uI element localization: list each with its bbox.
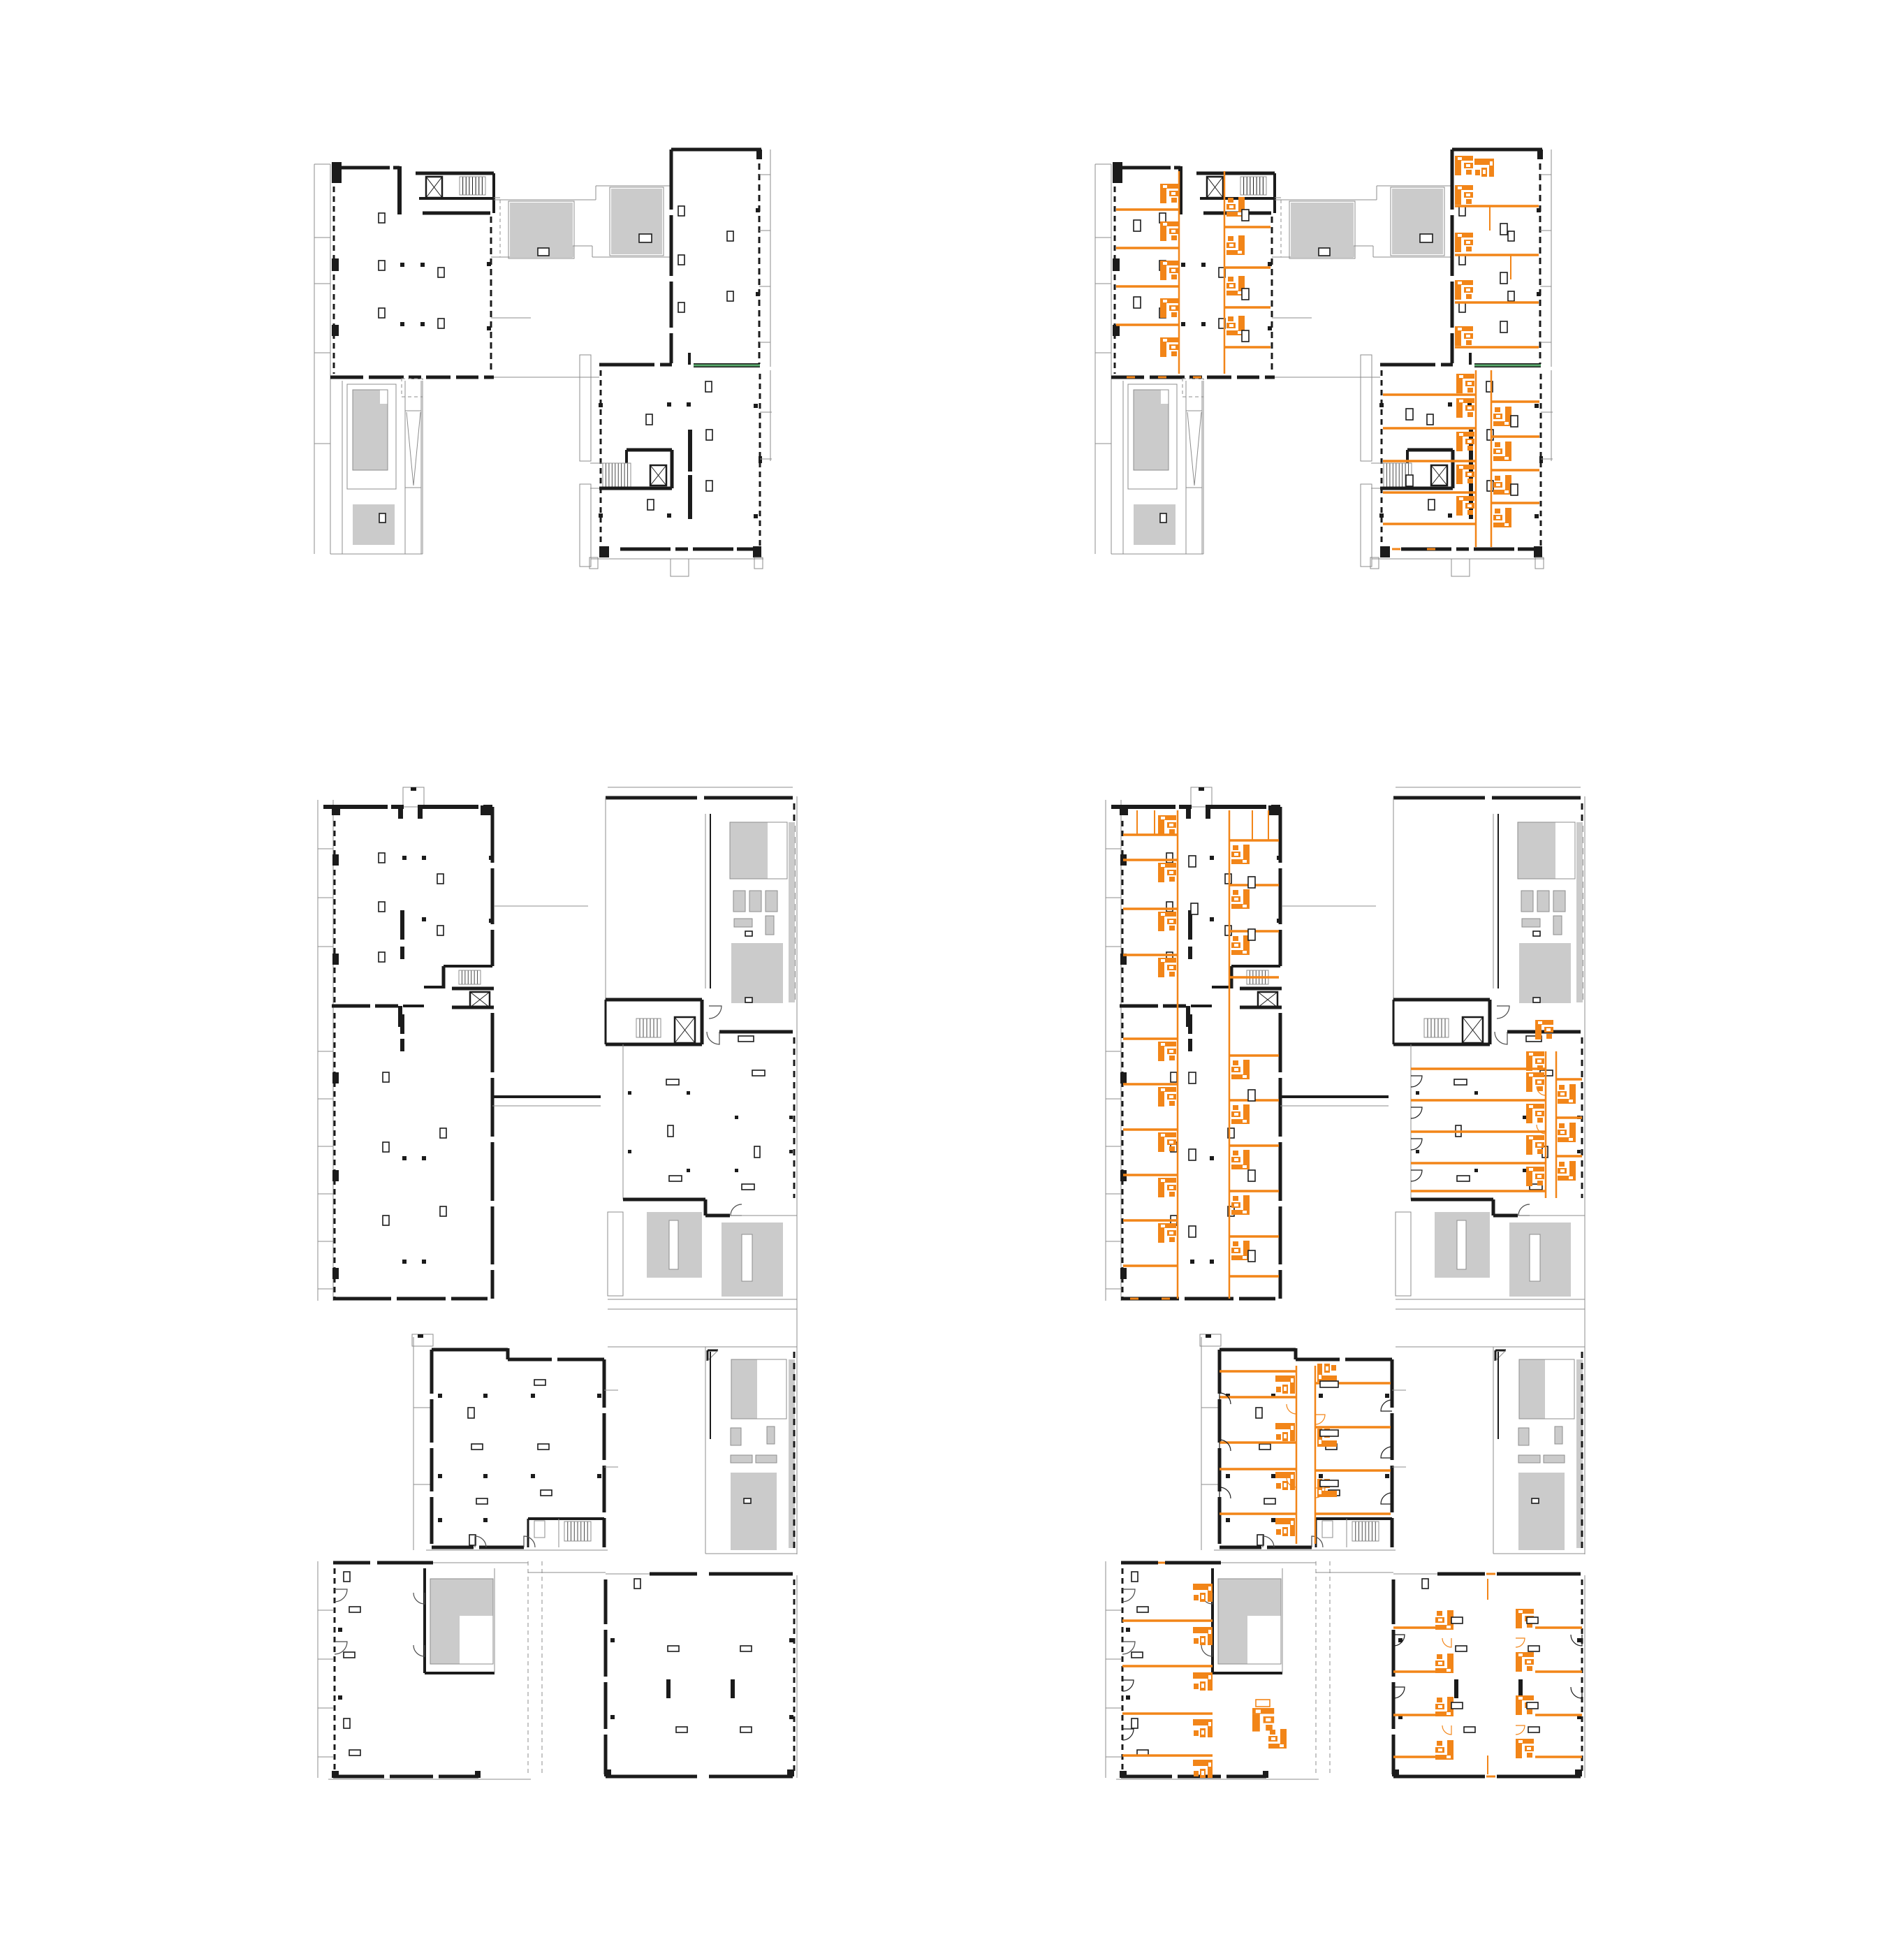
unit-fixture-part [1489, 159, 1494, 177]
area-rect [332, 258, 339, 271]
column-rect [752, 1070, 765, 1076]
unit-fixture-part [1435, 1712, 1453, 1716]
area-rect [787, 1769, 794, 1776]
door-swing-icon [1287, 1404, 1296, 1414]
column-dot [531, 1474, 535, 1478]
unit-fixture-part [1275, 1423, 1290, 1429]
unit-fixture-part [1233, 1151, 1238, 1155]
gray-area [734, 919, 752, 927]
door-swing-icon [731, 1204, 742, 1216]
unit-fixture-cutout [1284, 1529, 1287, 1533]
unit-fixture-part [1193, 1672, 1208, 1679]
column-rect [1320, 1480, 1338, 1487]
unit-fixture-part [1526, 1135, 1544, 1140]
unit-fixture-part [1456, 501, 1463, 516]
column-dot [483, 1474, 488, 1478]
unit-fixture-cutout [1169, 1050, 1173, 1053]
unit-fixture-icon [1317, 1364, 1337, 1382]
column-rect [639, 234, 652, 242]
unit-fixture-cutout [1243, 905, 1247, 907]
unit-fixture-cutout [1537, 1060, 1541, 1063]
unit-fixture-cutout [1467, 440, 1472, 443]
unit-fixture-cutout [1458, 282, 1462, 284]
unit-fixture-cutout [1243, 860, 1247, 863]
unit-fixture-cutout [1238, 331, 1242, 334]
unit-fixture-cutout [1459, 497, 1463, 500]
column-dot [1319, 1394, 1323, 1398]
unit-fixture-cutout [1447, 1712, 1451, 1715]
unit-fixture-part [1280, 1729, 1287, 1744]
column-rect [383, 1216, 389, 1225]
unit-fixture-part [1158, 868, 1164, 882]
door-swing-icon [1411, 1076, 1422, 1087]
area-rect [400, 1039, 404, 1051]
unit-fixture-part [1290, 1518, 1295, 1536]
unit-fixture-cutout [1284, 1483, 1287, 1487]
column-dot [599, 403, 603, 407]
column-rect [1451, 1617, 1463, 1623]
area-rect [1454, 1679, 1458, 1698]
column-dot [1448, 402, 1452, 407]
column-dot [789, 1638, 793, 1642]
unit-fixture-part [1322, 1440, 1337, 1447]
area-rect [1530, 1234, 1540, 1281]
column-dot [628, 1150, 631, 1153]
unit-fixture-part [1455, 185, 1473, 190]
unit-fixture-part [1505, 441, 1511, 456]
unit-fixture-part [1516, 1739, 1534, 1744]
unit-fixture-cutout [1496, 450, 1500, 453]
unit-fixture-part [1208, 1672, 1213, 1691]
column-rect [668, 1646, 679, 1651]
area-rect [1263, 1771, 1268, 1778]
column-rect [1454, 1079, 1467, 1085]
floor-plan-upper-base [311, 143, 800, 583]
area-rect [332, 1268, 339, 1279]
unit-fixture-part [1243, 845, 1250, 859]
unit-fixture-cutout [1447, 1756, 1451, 1758]
unit-fixture-part [1466, 170, 1472, 175]
area-rect [1186, 807, 1191, 819]
area-rect [332, 325, 339, 336]
wall-line [413, 412, 420, 486]
column-dot [422, 1156, 426, 1160]
unit-fixture-cutout [1490, 161, 1493, 166]
unit-fixture-part [1456, 379, 1463, 393]
column-rect [1189, 856, 1196, 867]
unit-fixture-part [1158, 1137, 1164, 1152]
column-dot [597, 1394, 601, 1398]
unit-fixture-cutout [1466, 194, 1470, 196]
area-rect [1120, 1268, 1127, 1279]
column-rect [379, 902, 385, 912]
unit-fixture-part [1231, 950, 1250, 955]
unit-fixture-icon [1435, 1697, 1453, 1716]
unit-fixture-part [1169, 1056, 1175, 1060]
door-swing-icon [1411, 1170, 1422, 1181]
column-rect [541, 1490, 552, 1496]
unit-fixture-part [1516, 1657, 1522, 1672]
column-dot [1226, 1474, 1230, 1478]
column-dot [1210, 917, 1214, 921]
unit-fixture-cutout [1161, 1088, 1165, 1091]
unit-fixture-part [1474, 159, 1489, 165]
column-dot [400, 322, 404, 326]
unit-fixture-part [1475, 170, 1480, 175]
unit-fixture-part [1158, 963, 1164, 977]
area-rect [332, 954, 339, 965]
column-dot [402, 1260, 407, 1264]
unit-fixture-part [1558, 1099, 1576, 1104]
door-swing-icon [1122, 1589, 1135, 1602]
column-dot [756, 208, 760, 212]
gray-area [353, 504, 395, 545]
unit-fixture-cutout [1560, 1131, 1565, 1134]
unit-fixture-icon [1158, 1132, 1176, 1152]
column-rect [1464, 1727, 1475, 1732]
unit-fixture-icon [1455, 233, 1473, 252]
unit-fixture-part [1169, 1146, 1175, 1151]
unit-fixture-cutout [1171, 192, 1176, 195]
unit-fixture-icon [1193, 1584, 1213, 1602]
unit-fixture-icon [1455, 185, 1473, 205]
unit-fixture-icon [1526, 1167, 1544, 1186]
column-dot [1181, 263, 1185, 267]
unit-fixture-part [1268, 1744, 1287, 1749]
column-rect [1319, 248, 1330, 256]
unit-fixture-cutout [1243, 1075, 1247, 1078]
column-rect [745, 998, 752, 1002]
gray-area [731, 1455, 752, 1463]
layer-top_base [314, 149, 772, 576]
area-rect [1188, 1014, 1192, 1034]
column-dot [597, 1474, 601, 1478]
unit-fixture-cutout [1284, 1387, 1287, 1391]
unit-fixture-cutout [1169, 1141, 1173, 1144]
unit-fixture-part [1546, 1034, 1552, 1039]
unit-fixture-part [1455, 238, 1461, 252]
layer-bottom_base [318, 787, 797, 1779]
area-rect [332, 1072, 339, 1083]
unit-fixture-part [1160, 342, 1166, 357]
column-rect [383, 1072, 389, 1082]
unit-fixture-part [1456, 374, 1474, 379]
area-rect [759, 456, 762, 463]
unit-fixture-part [1275, 1518, 1290, 1524]
unit-fixture-icon [1456, 465, 1474, 484]
unit-fixture-part [1226, 250, 1245, 255]
unit-fixture-part [1437, 1654, 1442, 1659]
unit-fixture-part [1194, 1730, 1199, 1736]
unit-fixture-cutout [1280, 1744, 1284, 1747]
area-rect [666, 1679, 671, 1698]
column-dot [402, 856, 407, 860]
column-rect [383, 1142, 389, 1152]
unit-fixture-cutout [1529, 1105, 1533, 1108]
door-swing-icon [1315, 1415, 1325, 1424]
unit-fixture-part [1160, 298, 1178, 303]
unit-fixture-icon [1435, 1740, 1453, 1760]
unit-fixture-part [1231, 904, 1250, 909]
column-dot [489, 856, 493, 860]
area-rect [1113, 258, 1120, 271]
unit-fixture-part [1171, 312, 1177, 317]
door-swing-icon [1411, 1139, 1422, 1150]
unit-fixture-cutout [1284, 1434, 1287, 1438]
unit-fixture-cutout [1496, 516, 1500, 519]
unit-fixture-part [1276, 1434, 1281, 1440]
unit-fixture-part [1158, 1228, 1164, 1243]
unit-fixture-cutout [1459, 400, 1463, 402]
unit-fixture-part [1527, 1753, 1532, 1758]
column-rect [344, 1572, 350, 1582]
column-rect [1500, 321, 1507, 333]
column-rect [706, 430, 712, 440]
unit-fixture-cutout [1483, 170, 1486, 174]
unit-fixture-cutout [1504, 422, 1509, 425]
plan-sheet [0, 0, 1904, 1956]
unit-fixture-cutout [1208, 1675, 1211, 1679]
unit-fixture-cutout [1504, 523, 1509, 526]
door-swing-icon [707, 1032, 719, 1044]
unit-fixture-icon [1526, 1072, 1544, 1092]
unit-fixture-icon [1268, 1729, 1287, 1749]
unit-fixture-part [1231, 1165, 1250, 1169]
unit-fixture-part [1537, 1065, 1543, 1070]
unit-fixture-icon [1158, 1223, 1176, 1243]
area-rect [460, 1616, 493, 1664]
column-dot [1126, 1695, 1130, 1700]
column-rect [727, 291, 733, 301]
unit-fixture-icon [1231, 845, 1250, 864]
unit-fixture-part [1243, 1195, 1250, 1210]
area-rect [1451, 559, 1470, 576]
column-rect [344, 1652, 355, 1658]
unit-fixture-cutout [1234, 944, 1238, 947]
unit-fixture-cutout [1459, 433, 1463, 436]
column-dot [438, 1394, 442, 1398]
column-rect [1166, 853, 1173, 863]
unit-fixture-cutout [1163, 300, 1167, 302]
unit-fixture-cutout [1238, 291, 1242, 294]
unit-fixture-part [1208, 1627, 1213, 1645]
column-dot [1210, 856, 1214, 860]
unit-fixture-cutout [1466, 289, 1470, 291]
unit-fixture-part [1447, 1654, 1453, 1668]
unit-fixture-cutout [1560, 1169, 1565, 1172]
area-rect [332, 1170, 339, 1181]
unit-fixture-part [1233, 1196, 1238, 1201]
unit-fixture-part [1158, 958, 1176, 963]
unit-fixture-icon [1526, 1135, 1544, 1155]
unit-fixture-icon [1231, 889, 1250, 909]
unit-fixture-cutout [1467, 504, 1472, 507]
unit-fixture-part [1559, 1085, 1565, 1090]
column-dot [687, 402, 691, 407]
unit-fixture-cutout [1234, 1113, 1238, 1116]
door-swing-icon [1518, 1204, 1530, 1216]
gray-area [1522, 919, 1540, 927]
unit-fixture-part [1495, 476, 1500, 481]
unit-fixture-part [1228, 316, 1233, 321]
column-rect [1248, 1250, 1255, 1262]
unit-fixture-cutout [1291, 1521, 1294, 1525]
column-dot [422, 856, 426, 860]
unit-fixture-cutout [1243, 1256, 1247, 1259]
unit-fixture-icon [1456, 496, 1474, 516]
column-rect [379, 952, 385, 962]
column-dot [531, 1394, 535, 1398]
area-rect [753, 546, 761, 557]
column-dot [338, 1695, 342, 1700]
column-rect [468, 1408, 474, 1418]
column-rect [1420, 234, 1433, 242]
column-rect [1189, 1226, 1196, 1237]
column-dot [754, 514, 758, 518]
unit-fixture-cutout [1238, 251, 1242, 254]
area-rect [1575, 1769, 1582, 1776]
unit-fixture-cutout [1238, 212, 1242, 215]
column-rect [1242, 210, 1249, 221]
floor-plan-upper-units-highlighted [1092, 143, 1581, 583]
unit-fixture-cutout [1527, 1661, 1531, 1663]
column-rect [379, 213, 385, 223]
unit-fixture-cutout [1266, 1718, 1270, 1721]
column-dot [400, 263, 404, 267]
column-dot [1271, 1518, 1275, 1522]
unit-fixture-part [1194, 1595, 1199, 1600]
unit-fixture-cutout [1243, 1120, 1247, 1123]
area-rect [688, 430, 692, 472]
unit-fixture-part [1158, 820, 1164, 835]
area-rect [1206, 807, 1210, 819]
unit-fixture-cutout [1438, 1749, 1442, 1751]
column-rect [437, 926, 444, 935]
gray-area [1518, 1455, 1540, 1463]
unit-fixture-cutout [1256, 1709, 1261, 1713]
unit-fixture-part [1193, 1719, 1208, 1725]
unit-fixture-icon [1456, 374, 1474, 393]
unit-fixture-part [1169, 1101, 1175, 1106]
column-dot [483, 1518, 488, 1522]
unit-fixture-cutout [1208, 1762, 1211, 1767]
unit-fixture-icon [1275, 1518, 1295, 1536]
column-dot [1416, 1150, 1419, 1153]
unit-fixture-part [1456, 403, 1463, 418]
column-rect [1528, 1646, 1539, 1651]
column-rect [1459, 255, 1465, 265]
unit-fixture-part [1231, 1119, 1250, 1124]
unit-fixture-part [1526, 1109, 1532, 1123]
unit-fixture-part [1569, 1161, 1576, 1176]
unit-fixture-part [1169, 1192, 1175, 1197]
gray-area [1537, 891, 1549, 912]
unit-fixture-part [1169, 877, 1175, 882]
gray-area [1519, 1359, 1545, 1419]
unit-fixture-part [1243, 1150, 1250, 1165]
unit-fixture-part [1455, 331, 1461, 346]
unit-fixture-cutout [1161, 1225, 1165, 1227]
unit-fixture-cutout [1161, 817, 1165, 819]
unit-fixture-part [1516, 1695, 1534, 1700]
column-dot [1201, 322, 1206, 326]
column-rect [471, 1444, 483, 1450]
door-swing-icon [413, 1645, 425, 1656]
area-rect [604, 1769, 611, 1776]
unit-fixture-cutout [1438, 1619, 1442, 1621]
area-rect [481, 805, 492, 815]
column-rect [1459, 206, 1465, 216]
unit-fixture-cutout [1467, 407, 1472, 409]
unit-fixture-cutout [1169, 920, 1173, 923]
unit-fixture-part [1437, 1698, 1442, 1702]
unit-fixture-part [1435, 1755, 1453, 1760]
column-rect [744, 1498, 751, 1503]
unit-fixture-icon [1160, 298, 1178, 318]
unit-fixture-cutout [1161, 1043, 1165, 1046]
unit-fixture-icon [1193, 1627, 1213, 1645]
area-rect [332, 162, 342, 183]
unit-fixture-part [1158, 1223, 1176, 1228]
unit-fixture-part [1276, 1483, 1281, 1489]
unit-fixture-cutout [1163, 262, 1167, 265]
wall-line [1187, 412, 1194, 486]
column-rect [1532, 1498, 1539, 1503]
unit-fixture-cutout [1537, 1144, 1541, 1146]
unit-fixture-part [1437, 1741, 1442, 1746]
unit-fixture-icon [1456, 432, 1474, 451]
unit-fixture-part [1456, 469, 1463, 484]
unit-fixture-part [1455, 190, 1461, 205]
door-swing-icon [1516, 1725, 1525, 1735]
unit-fixture-part [1171, 275, 1177, 279]
unit-fixture-part [1456, 496, 1474, 501]
column-rect [646, 414, 652, 425]
column-rect [1457, 1176, 1470, 1181]
unit-fixture-icon [1456, 398, 1474, 418]
door-swing-icon [1442, 1638, 1451, 1647]
unit-fixture-part [1233, 1060, 1238, 1065]
column-dot [1535, 404, 1539, 408]
layer-top_base [1095, 149, 1553, 576]
area-rect [1120, 1072, 1127, 1083]
area-rect [1518, 1679, 1523, 1698]
unit-fixture-icon [1158, 1087, 1176, 1107]
column-rect [754, 1146, 760, 1158]
door-swing-icon [1201, 1645, 1213, 1656]
unit-fixture-cutout [1208, 1586, 1211, 1591]
gray-area [1553, 891, 1565, 912]
unit-fixture-part [1466, 247, 1472, 251]
column-dot [789, 1715, 793, 1719]
area-rect [332, 854, 339, 866]
unit-fixture-part [1537, 1118, 1543, 1123]
unit-fixture-part [1169, 1237, 1175, 1242]
unit-fixture-part [1238, 316, 1245, 330]
unit-fixture-part [1208, 1760, 1213, 1778]
unit-fixture-cutout [1243, 1211, 1247, 1213]
unit-fixture-part [1526, 1072, 1544, 1077]
column-rect [647, 499, 654, 510]
unit-fixture-cutout [1169, 1186, 1173, 1189]
column-rect [740, 1727, 752, 1732]
unit-fixture-part [1317, 1364, 1322, 1382]
gray-area [731, 943, 783, 1003]
unit-fixture-icon [1516, 1652, 1534, 1672]
unit-fixture-cutout [1496, 483, 1500, 486]
column-dot [420, 322, 425, 326]
unit-fixture-cutout [1171, 307, 1176, 309]
